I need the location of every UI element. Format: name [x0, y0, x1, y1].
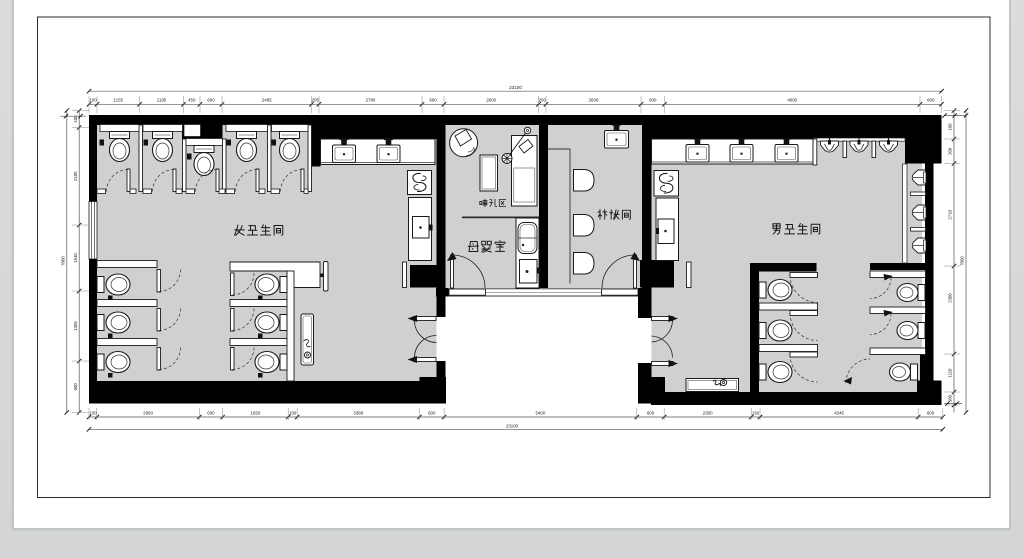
svg-text:7800: 7800 [60, 256, 65, 266]
svg-text:150: 150 [752, 411, 760, 416]
svg-text:600: 600 [207, 98, 215, 103]
svg-text:600: 600 [207, 411, 215, 416]
svg-text:2105: 2105 [73, 171, 78, 181]
svg-text:450: 450 [188, 98, 196, 103]
svg-text:1540: 1540 [73, 253, 78, 263]
svg-text:2800: 2800 [143, 411, 153, 416]
svg-text:600: 600 [429, 98, 437, 103]
svg-text:600: 600 [927, 411, 935, 416]
svg-text:600: 600 [647, 411, 655, 416]
svg-text:205: 205 [312, 98, 320, 103]
svg-text:23100: 23100 [509, 85, 522, 90]
svg-text:1195: 1195 [157, 98, 167, 103]
svg-text:7800: 7800 [960, 256, 965, 266]
svg-text:23100: 23100 [506, 423, 519, 428]
svg-text:200: 200 [539, 98, 547, 103]
svg-text:600: 600 [73, 383, 78, 391]
svg-text:100: 100 [89, 411, 97, 416]
svg-text:1820: 1820 [251, 411, 261, 416]
svg-text:4345: 4345 [834, 411, 844, 416]
svg-text:3380: 3380 [353, 411, 363, 416]
svg-text:2485: 2485 [262, 98, 272, 103]
svg-text:2780: 2780 [366, 98, 376, 103]
svg-text:2300: 2300 [948, 293, 953, 303]
svg-text:600: 600 [649, 98, 657, 103]
svg-text:2710: 2710 [948, 209, 953, 219]
svg-text:100: 100 [89, 98, 97, 103]
svg-text:1305: 1305 [73, 321, 78, 331]
svg-text:100: 100 [289, 411, 297, 416]
svg-text:600: 600 [927, 98, 935, 103]
svg-text:2300: 2300 [703, 411, 713, 416]
svg-text:600: 600 [428, 411, 436, 416]
svg-text:2600: 2600 [589, 98, 599, 103]
svg-text:4000: 4000 [787, 98, 797, 103]
svg-text:1155: 1155 [114, 98, 124, 103]
svg-text:1110: 1110 [948, 368, 953, 378]
svg-text:2600: 2600 [486, 98, 496, 103]
svg-text:5400: 5400 [536, 411, 546, 416]
svg-text:200: 200 [948, 147, 953, 155]
svg-text:100: 100 [948, 394, 953, 402]
svg-text:100: 100 [948, 123, 953, 131]
